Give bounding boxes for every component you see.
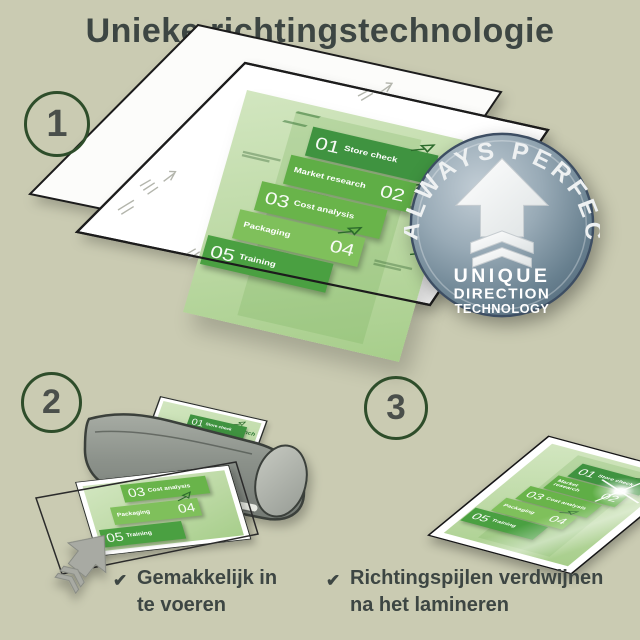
block-label: Cost analysis <box>293 200 378 227</box>
check-icon: ✔ <box>113 566 137 593</box>
document-sheet: 03Cost analysisPackaging0405Training <box>83 470 244 551</box>
block-number: 04 <box>176 501 196 515</box>
block-label: Training <box>126 528 180 539</box>
badge-line-technology: TECHNOLOGY <box>455 301 550 316</box>
infographic-block-04: Packaging04 <box>110 498 203 525</box>
benefit-text-line2: te voeren <box>137 593 277 618</box>
direction-arrow-icon <box>175 490 194 502</box>
step-3-number: 3 <box>364 376 428 440</box>
always-perfect-badge: ALWAYS PERFECT! UNIQUE DIRECTION TECHNOL… <box>404 127 600 323</box>
infographic-block-01: 01Store check <box>186 414 247 439</box>
block-number: 02 <box>378 182 407 204</box>
badge-line-unique: UNIQUE <box>454 265 551 287</box>
infographic-block-05: 05Training <box>99 521 187 548</box>
block-number: 05 <box>208 243 237 265</box>
benefit-easy-feeding: ✔ Gemakkelijk in te voeren <box>113 566 277 618</box>
block-label: Training <box>238 254 323 281</box>
direction-arrow-icon <box>233 419 247 429</box>
block-number: 03 <box>126 485 146 499</box>
block-number: 04 <box>328 237 357 259</box>
benefit-text-line1: Gemakkelijk in <box>137 566 277 593</box>
block-number: 03 <box>263 189 292 211</box>
benefit-text-line2: na het lamineren <box>350 593 603 618</box>
document-sheet: Launch 01Store checkMarket research0203C… <box>444 444 640 567</box>
benefit-text-line1: Richtingspijlen verdwijnen <box>350 566 603 593</box>
check-icon: ✔ <box>326 566 350 593</box>
benefit-arrows-disappear: ✔ Richtingspijlen verdwijnen na het lami… <box>326 566 603 618</box>
block-number: 01 <box>190 417 205 428</box>
step-1-number: 1 <box>24 91 90 157</box>
block-label: Packaging <box>116 507 175 519</box>
infographic-page: Unieke richtingstechnologie Launch 01Sto… <box>0 0 640 640</box>
badge-line-direction: DIRECTION <box>454 286 551 303</box>
infographic-blocks: 03Cost analysisPackaging0405Training <box>83 470 244 551</box>
document-exiting-laminator: 03Cost analysisPackaging0405Training <box>75 465 251 557</box>
page-title: Unieke richtingstechnologie <box>0 12 640 51</box>
block-label: Packaging <box>242 222 327 249</box>
laminator-end-cap <box>248 440 314 522</box>
block-number: 05 <box>105 530 125 544</box>
block-label: Market research <box>293 167 378 194</box>
step-2-number: 2 <box>21 372 82 433</box>
laminated-document: Launch 01Store checkMarket research0203C… <box>427 436 640 575</box>
block-number: 01 <box>313 134 342 156</box>
